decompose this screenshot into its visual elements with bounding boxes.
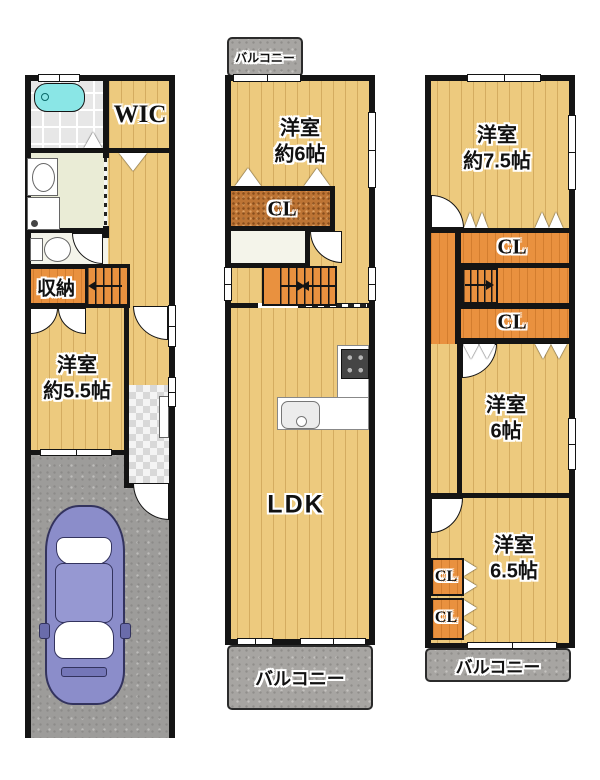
washing-machine-knob <box>31 220 38 227</box>
closet-door-mark <box>464 620 477 636</box>
room2f-size: 約6帖 <box>274 138 325 167</box>
closet-door-mark <box>235 168 261 186</box>
car <box>45 505 125 705</box>
closet-door-mark <box>304 168 330 186</box>
closet-door-mark <box>535 212 549 228</box>
toilet-bowl <box>44 237 71 262</box>
room75-size: 約7.5帖 <box>463 145 531 174</box>
closet-door-mark <box>476 212 488 228</box>
closet2-label: CL <box>497 310 526 335</box>
closet2f-label: CL <box>267 197 296 222</box>
room1f-size: 約5.5帖 <box>43 375 111 404</box>
wall <box>124 455 129 483</box>
room75-name: 洋室 <box>477 119 517 148</box>
wic-label: WIC <box>114 101 167 129</box>
sliding-door-dashed <box>104 158 107 228</box>
balcony-bottom-label: バルコニー <box>255 665 345 691</box>
stair-arrow <box>465 284 487 286</box>
washbasin-bowl <box>32 163 55 192</box>
wall <box>225 186 335 191</box>
bathtub <box>34 83 85 112</box>
room6-size: 6帖 <box>490 415 521 444</box>
washing-machine <box>27 197 60 230</box>
closet1-label: CL <box>497 235 526 260</box>
wall <box>124 308 129 455</box>
wic-door-mark <box>119 153 147 171</box>
closet-door-mark <box>479 344 495 359</box>
balcony-bottom: バルコニー <box>227 645 373 710</box>
toilet-tank <box>30 238 43 261</box>
closet-door-mark <box>464 578 477 594</box>
bathroom-door-mark <box>84 132 102 148</box>
window <box>368 112 376 188</box>
closet-door-mark <box>464 560 477 576</box>
sink-faucet <box>296 416 307 427</box>
car-grill <box>61 667 107 677</box>
car-rear-window <box>56 537 112 565</box>
wall <box>305 231 310 263</box>
window <box>233 74 301 82</box>
closet-door-mark <box>551 344 567 359</box>
wall <box>225 75 231 645</box>
window <box>568 418 576 470</box>
stair-arrow <box>308 285 326 287</box>
balcony-top-label: バルコニー <box>235 49 295 66</box>
window <box>568 115 576 190</box>
room1f-name: 洋室 <box>57 349 97 378</box>
window <box>300 638 366 645</box>
room6-name: 洋室 <box>486 389 526 418</box>
window <box>38 74 80 82</box>
closet4-label: CL <box>435 609 457 627</box>
window <box>467 642 557 649</box>
closet-door-mark <box>464 600 477 616</box>
floor-plan-canvas: WIC 収納 洋室 約5.5帖 バルコニー バルコニー <box>0 0 600 780</box>
stair-arrow <box>280 285 298 287</box>
storage-label: 収納 <box>37 274 75 301</box>
closet-door-mark <box>464 212 476 228</box>
room65-size: 6.5帖 <box>490 555 538 584</box>
closet3-label: CL <box>435 568 457 586</box>
balcony3: バルコニー <box>425 648 571 682</box>
window <box>224 267 232 301</box>
window <box>237 638 273 645</box>
stair-arrow <box>95 285 122 287</box>
car-mirror-right <box>120 623 131 639</box>
window <box>168 377 176 407</box>
closet-door-mark <box>535 344 551 359</box>
ldk-label: LDK <box>267 491 324 520</box>
stove <box>341 349 369 379</box>
balcony-top: バルコニー <box>227 37 303 77</box>
bathtub-drain <box>41 93 49 101</box>
car-mirror-left <box>39 623 50 639</box>
window <box>368 267 376 301</box>
car-windshield <box>54 621 114 659</box>
wall <box>425 75 431 648</box>
kitchen-sink <box>281 401 320 429</box>
wall <box>425 228 575 233</box>
closet-door-mark <box>549 212 563 228</box>
room65-name: 洋室 <box>494 529 534 558</box>
wall <box>103 75 109 158</box>
car-roof <box>55 563 113 623</box>
washbasin <box>27 158 58 196</box>
window <box>40 449 112 456</box>
closet-door-mark <box>463 344 479 359</box>
window <box>168 305 176 347</box>
wall <box>25 148 175 153</box>
balcony3-label: バルコニー <box>456 653 541 678</box>
toilet-floor2 <box>231 231 305 263</box>
wall <box>330 186 335 231</box>
room2f-name: 洋室 <box>280 112 320 141</box>
window <box>467 74 541 82</box>
